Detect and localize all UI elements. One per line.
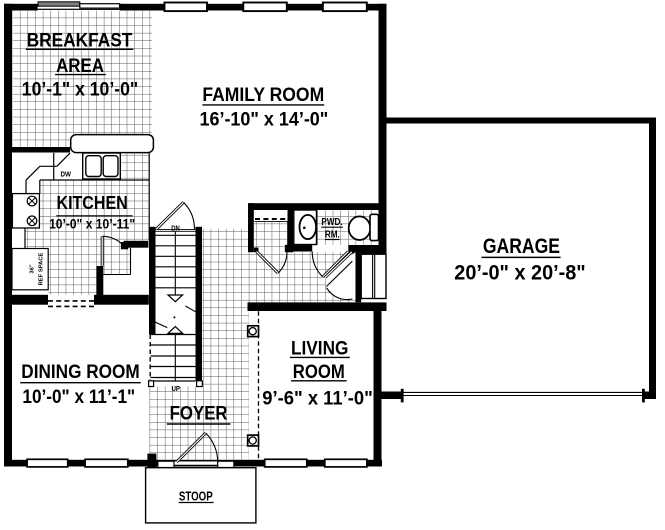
- svg-text:20’-0" x 20’-8": 20’-0" x 20’-8": [454, 262, 585, 285]
- svg-text:STOOP: STOOP: [179, 488, 213, 503]
- svg-text:10’-0" x 11’-1": 10’-0" x 11’-1": [22, 387, 135, 408]
- svg-text:RM.: RM.: [325, 229, 340, 241]
- svg-text:AREA: AREA: [56, 56, 104, 77]
- svg-text:9’-6" x 11’-0": 9’-6" x 11’-0": [262, 389, 373, 410]
- svg-text:GARAGE: GARAGE: [483, 234, 560, 258]
- svg-text:PWD.: PWD.: [321, 216, 342, 228]
- svg-text:UP: UP: [172, 386, 181, 393]
- svg-text:10’-0" x 10’-11": 10’-0" x 10’-11": [49, 217, 135, 232]
- svg-text:DN: DN: [171, 225, 180, 232]
- svg-text:10’-1" x 10’-0": 10’-1" x 10’-0": [22, 80, 138, 101]
- svg-text:BREAKFAST: BREAKFAST: [27, 30, 133, 51]
- svg-text:DINING ROOM: DINING ROOM: [21, 362, 139, 383]
- svg-text:FOYER: FOYER: [170, 404, 228, 425]
- svg-text:16’-10" x 14’-0": 16’-10" x 14’-0": [200, 110, 329, 131]
- svg-text:ROOM: ROOM: [293, 362, 345, 383]
- svg-text:DW: DW: [61, 169, 72, 178]
- svg-text:REF SPACE: REF SPACE: [39, 252, 45, 285]
- svg-text:LIVING: LIVING: [291, 339, 348, 360]
- svg-text:FAMILY ROOM: FAMILY ROOM: [202, 85, 324, 106]
- svg-text:36": 36": [30, 264, 36, 273]
- svg-text:KITCHEN: KITCHEN: [57, 193, 128, 213]
